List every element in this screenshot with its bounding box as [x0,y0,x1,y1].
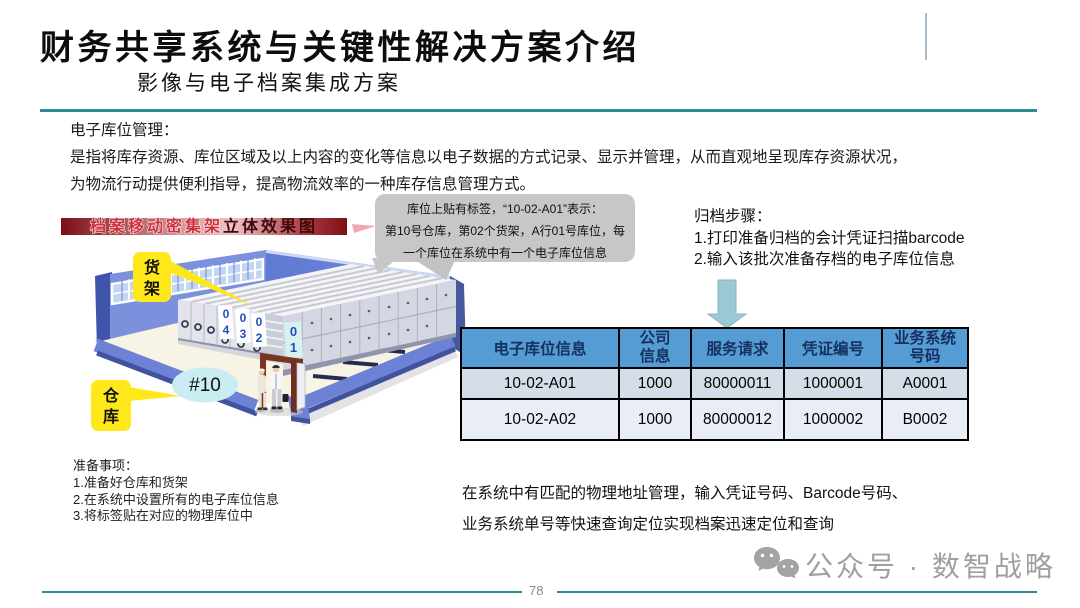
svg-text:2: 2 [256,331,263,345]
svg-text:4: 4 [223,323,230,337]
svg-text:仓: 仓 [102,386,120,405]
svg-text:架: 架 [143,279,160,298]
svg-text:1: 1 [290,340,297,355]
svg-text:0: 0 [290,324,297,339]
svg-text:档案移动密集架立体效果图: 档案移动密集架立体效果图 [90,217,318,236]
svg-text:3: 3 [240,327,247,341]
svg-text:货: 货 [144,258,160,277]
svg-text:#10: #10 [189,375,221,396]
svg-text:0: 0 [256,315,263,329]
svg-text:库: 库 [103,407,119,426]
svg-text:0: 0 [240,311,247,325]
svg-text:0: 0 [223,307,230,321]
